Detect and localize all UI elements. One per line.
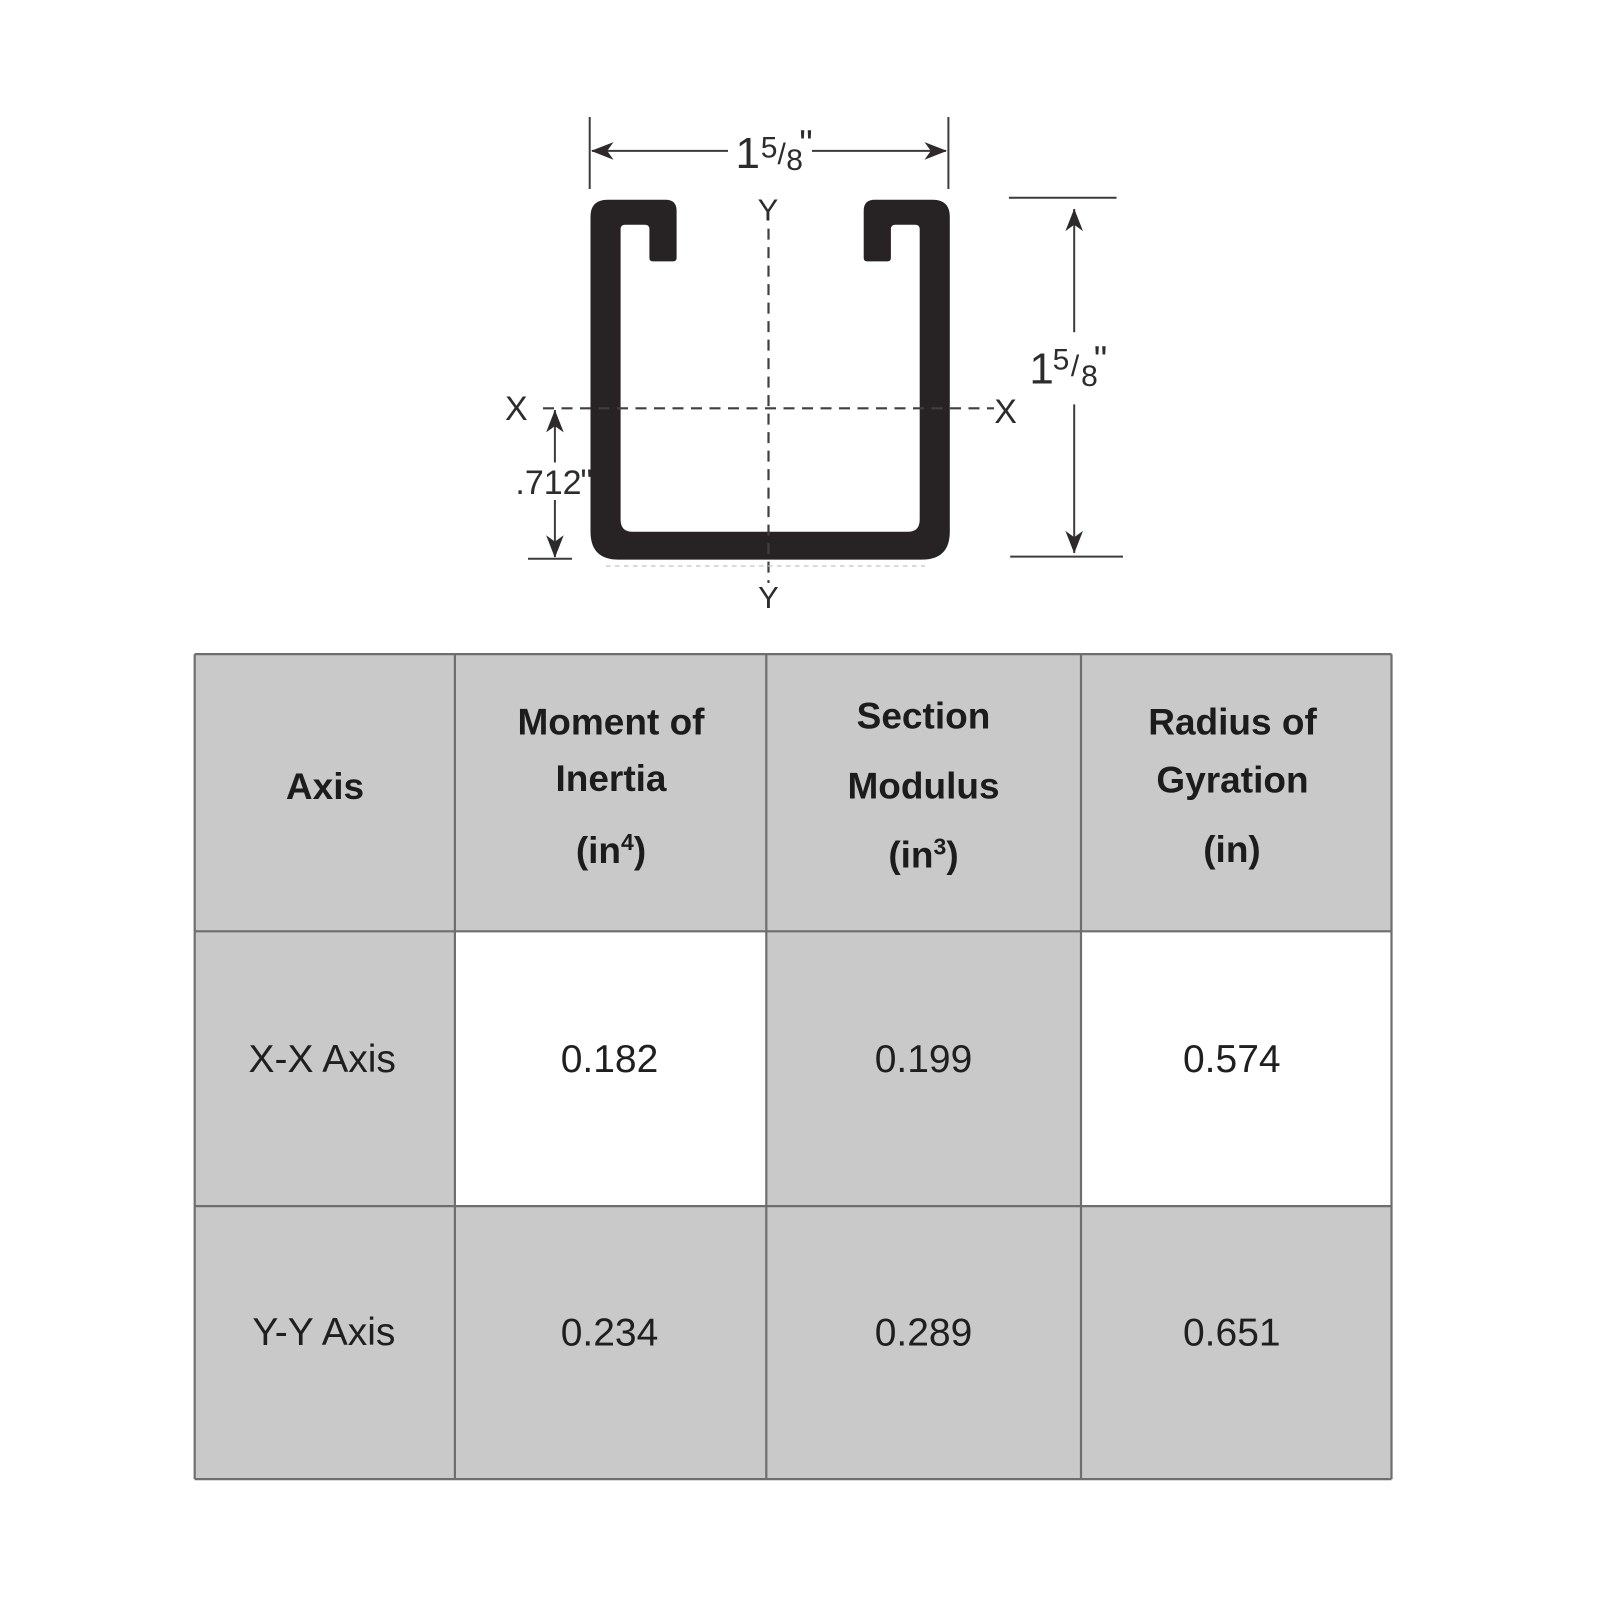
svg-text:0.651: 0.651 — [1183, 1311, 1281, 1354]
svg-text:0.199: 0.199 — [875, 1038, 973, 1081]
svg-text:": " — [799, 124, 813, 166]
svg-text:/: / — [1071, 350, 1080, 383]
svg-text:0.289: 0.289 — [875, 1311, 973, 1354]
svg-text:Axis: Axis — [286, 766, 364, 807]
svg-text:1: 1 — [736, 129, 760, 178]
svg-text:": " — [580, 463, 592, 501]
svg-text:(in4): (in4) — [576, 829, 646, 871]
svg-text:(in3): (in3) — [888, 834, 958, 876]
svg-text:Y: Y — [758, 580, 779, 615]
svg-text:5: 5 — [1053, 343, 1070, 376]
svg-text:Y-Y Axis: Y-Y Axis — [252, 1311, 395, 1354]
svg-text:(in): (in) — [1203, 829, 1261, 870]
svg-text:5: 5 — [761, 132, 778, 165]
svg-text:1: 1 — [1029, 344, 1053, 393]
svg-text:X: X — [994, 393, 1017, 431]
svg-text:Inertia: Inertia — [555, 758, 666, 799]
svg-text:Y: Y — [758, 193, 779, 228]
svg-text:X-X Axis: X-X Axis — [249, 1038, 396, 1081]
svg-text:Moment of: Moment of — [517, 702, 705, 743]
svg-text:0.182: 0.182 — [561, 1038, 659, 1081]
svg-text:0.234: 0.234 — [561, 1311, 659, 1354]
svg-text:Modulus: Modulus — [847, 766, 999, 807]
svg-text:/: / — [778, 138, 787, 171]
svg-text:Radius of: Radius of — [1148, 702, 1317, 743]
svg-text:X: X — [505, 390, 528, 428]
svg-text:": " — [1094, 340, 1108, 382]
svg-text:0.574: 0.574 — [1183, 1038, 1281, 1081]
svg-text:.712: .712 — [515, 464, 581, 502]
svg-text:Gyration: Gyration — [1156, 760, 1308, 801]
svg-text:Section: Section — [857, 696, 991, 737]
